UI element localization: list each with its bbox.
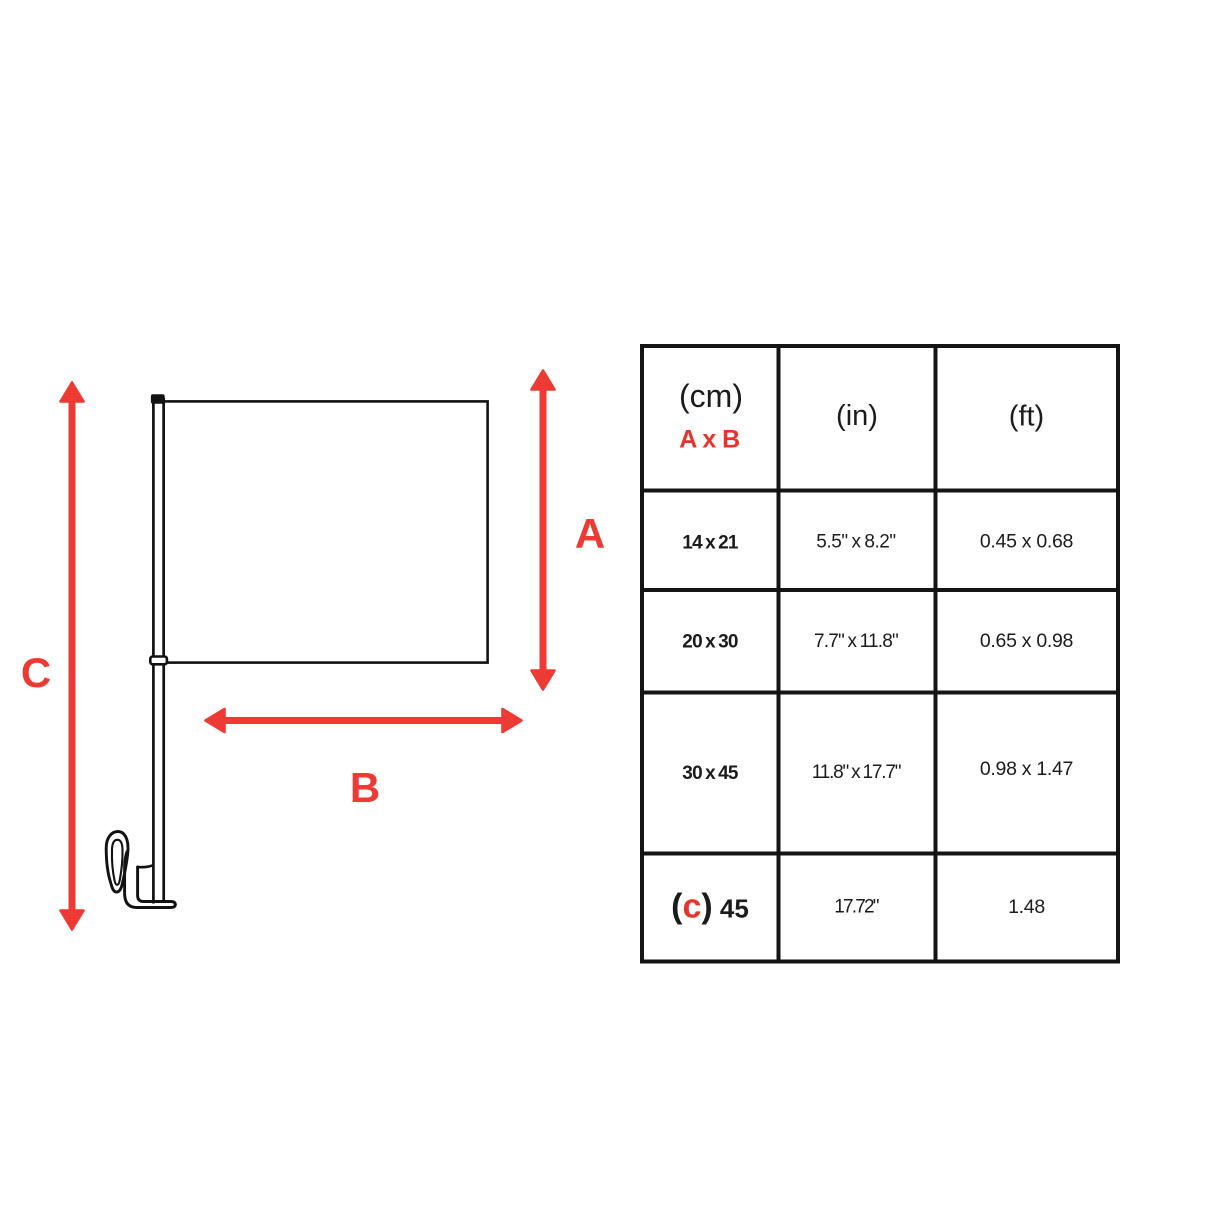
svg-text:A x B: A x B [679, 426, 739, 454]
svg-text:(c) 45: (c) 45 [671, 888, 749, 926]
svg-text:17.72": 17.72" [834, 897, 879, 918]
svg-text:0.65 x 0.98: 0.65 x 0.98 [980, 630, 1073, 652]
svg-text:(ft): (ft) [1009, 401, 1044, 433]
svg-text:7.7" x 11.8": 7.7" x 11.8" [814, 631, 898, 652]
svg-text:11.8" x 17.7": 11.8" x 17.7" [812, 762, 901, 783]
svg-text:(in): (in) [836, 400, 878, 432]
svg-text:1.48: 1.48 [1008, 896, 1045, 918]
svg-text:5.5" x 8.2": 5.5" x 8.2" [816, 532, 895, 553]
svg-text:A: A [575, 510, 605, 557]
svg-text:(cm): (cm) [679, 378, 743, 414]
svg-text:30 x 45: 30 x 45 [682, 763, 739, 784]
svg-text:0.45 x 0.68: 0.45 x 0.68 [980, 531, 1073, 553]
svg-text:14 x 21: 14 x 21 [682, 532, 739, 553]
svg-text:C: C [21, 649, 51, 696]
svg-text:0.98 x 1.47: 0.98 x 1.47 [980, 758, 1073, 780]
svg-text:B: B [350, 764, 380, 811]
svg-text:20 x 30: 20 x 30 [682, 631, 738, 652]
